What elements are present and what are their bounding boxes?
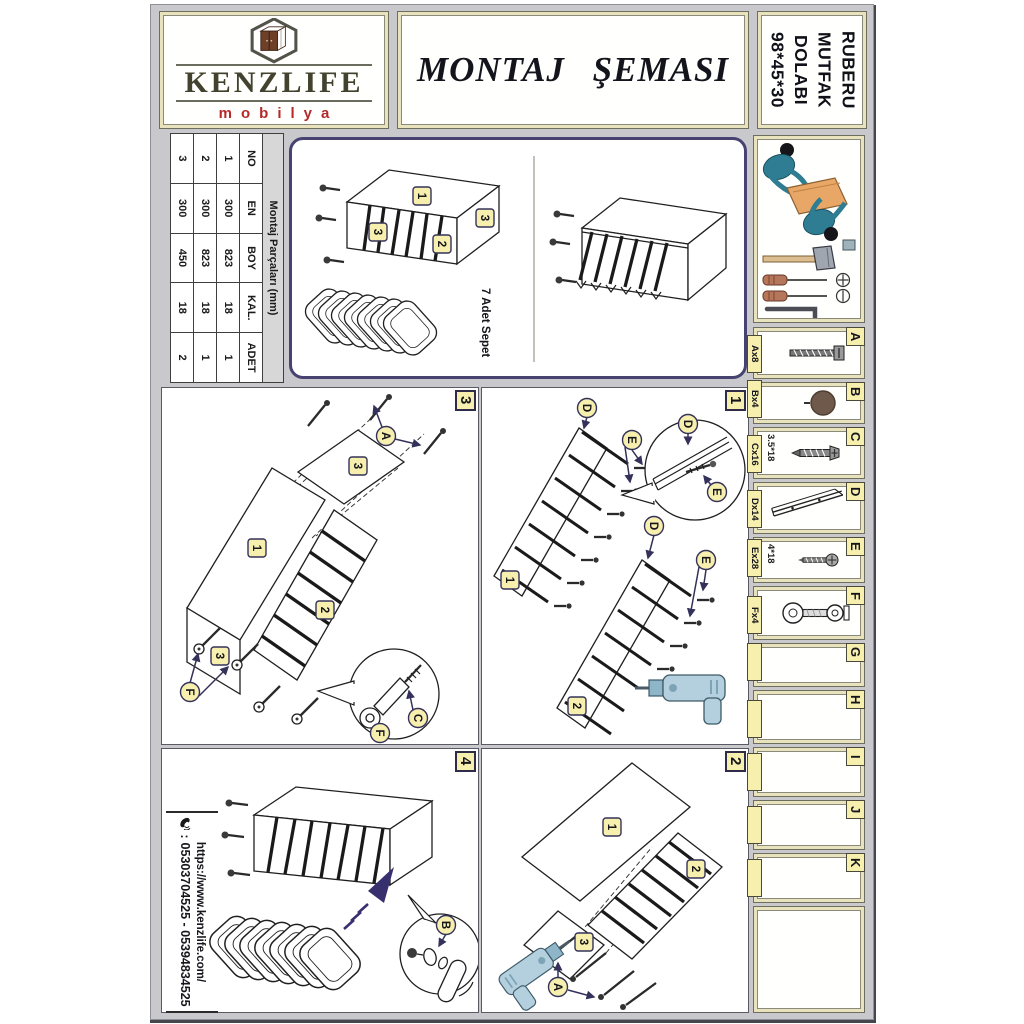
- label-1: 1: [501, 571, 519, 589]
- svg-text:3: 3: [478, 215, 490, 221]
- step-2-panel: 2 1 2 3 A: [481, 748, 749, 1013]
- hardware-box-h: H: [753, 690, 865, 744]
- adjustable-foot-icon: [778, 596, 856, 630]
- label-3-side: 3: [211, 647, 229, 665]
- overview-panel: 1 3 2 3 7 Adet Sepet: [289, 137, 747, 379]
- flat-screwdriver-icon: [763, 290, 850, 303]
- hardware-qty-f: Fx4: [747, 596, 762, 634]
- phillips-icon: [837, 274, 850, 287]
- callout-d2: D: [645, 517, 664, 536]
- hardware-letter-b: B: [846, 382, 865, 401]
- hardware-box-e: E Ex28 4*18: [753, 537, 865, 583]
- svg-text:B: B: [439, 921, 451, 929]
- phone-icon: [179, 817, 192, 830]
- hardware-qty-h: [747, 700, 762, 738]
- hardware-letter-d: D: [846, 482, 865, 501]
- hardware-qty-g: [747, 643, 762, 681]
- svg-text:3: 3: [371, 229, 383, 235]
- table-row: 2300823181: [194, 134, 217, 383]
- svg-text:2: 2: [318, 607, 330, 613]
- svg-text:D: D: [681, 420, 693, 428]
- phone-numbers[interactable]: 05303704525 - 05394834525: [178, 843, 192, 1007]
- callout-e2: E: [697, 551, 716, 570]
- hardware-qty-k: [747, 859, 762, 897]
- brand-name: KENZLIFE: [176, 64, 371, 103]
- product-box: RUBERU MUTFAK DOLABI 98*45*30: [757, 11, 867, 129]
- svg-text:F: F: [373, 729, 385, 736]
- label-1: 1: [603, 818, 621, 836]
- basket-note: 7 Adet Sepet: [479, 288, 491, 357]
- page-title: MONTAJ ŞEMASI: [417, 50, 729, 90]
- brand-subtitle: mobilya: [210, 105, 339, 122]
- step-1-number: 1: [725, 390, 746, 411]
- overview-label-1: 1: [413, 187, 431, 205]
- label-1: 1: [248, 539, 266, 557]
- step-3-number: 3: [455, 390, 476, 411]
- svg-text:A: A: [379, 432, 391, 440]
- brand-logo: KENZLIFE mobilya: [166, 18, 382, 122]
- parts-table-title: Montaj Parçaları (mm): [263, 134, 284, 383]
- hardware-box-b: B Bx4: [753, 382, 865, 424]
- svg-text:3: 3: [577, 939, 589, 945]
- hardware-box-a: A Ax8: [753, 327, 865, 379]
- hardware-box-c: C Cx16 3.5*18: [753, 427, 865, 479]
- cabinet: [222, 787, 433, 885]
- hardware-letter-c: C: [846, 427, 865, 446]
- label-3: 3: [575, 933, 593, 951]
- phillips-screwdriver-icon: [763, 274, 850, 287]
- hardware-box-k: K: [753, 853, 865, 903]
- hardware-letter-e: E: [846, 537, 865, 556]
- basket-stack: [205, 911, 365, 994]
- brand-box: KENZLIFE mobilya: [159, 11, 389, 129]
- overview-label-2: 2: [433, 235, 451, 253]
- label-2: 2: [568, 697, 586, 715]
- callout-c: C: [409, 709, 428, 728]
- svg-text:C: C: [411, 714, 423, 722]
- svg-text:1: 1: [415, 193, 427, 200]
- website-link[interactable]: https://www.kenzlife.com/: [194, 813, 206, 1011]
- svg-text:E: E: [699, 556, 711, 564]
- svg-text:E: E: [625, 436, 637, 444]
- step-2-diagram: 1 2 3 A: [482, 749, 747, 1012]
- step-1-diagram: D E 1 D E 2 D E: [482, 388, 747, 744]
- allen-key-icon: [767, 309, 815, 317]
- hardware-spec-c: 3.5*18: [765, 434, 776, 461]
- svg-text:3: 3: [351, 463, 363, 469]
- svg-text:1: 1: [250, 545, 262, 552]
- table-row: 1300823181: [217, 134, 240, 383]
- svg-text:2: 2: [689, 866, 701, 872]
- callout-e-detail: E: [708, 483, 727, 502]
- svg-text:D: D: [647, 522, 659, 530]
- callout-a: A: [377, 427, 396, 446]
- callout-b: B: [437, 916, 456, 935]
- hardware-box-d: D Dx14: [753, 482, 865, 534]
- hardware-letter-f: F: [846, 586, 865, 605]
- hardware-spec-e: 4*18: [765, 544, 776, 564]
- assembly-sheet: KENZLIFE mobilya MONTAJ ŞEMASI RUBERU MU…: [0, 0, 1024, 1024]
- label-2: 2: [687, 860, 705, 878]
- hardware-qty-a: Ax8: [747, 335, 762, 373]
- callout-e1: E: [623, 431, 642, 450]
- callout-d1: D: [578, 399, 597, 418]
- step-4-panel: 4 https://www.kenzlife.com/ : 0530370452…: [161, 748, 479, 1013]
- overview-label-3l: 3: [369, 223, 387, 241]
- step-2-number: 2: [725, 751, 746, 772]
- svg-text:3: 3: [213, 653, 225, 659]
- hardware-letter-g: G: [846, 643, 865, 662]
- overview-diagram: 1 3 2 3 7 Adet Sepet: [292, 140, 744, 376]
- step-3-panel: 3: [161, 387, 479, 745]
- svg-text:A: A: [551, 983, 563, 991]
- workers-icon: [760, 143, 855, 250]
- hardware-qty-e: Ex28: [747, 539, 762, 577]
- phone-line: : 05303704525 - 05394834525: [178, 813, 192, 1011]
- title-box: MONTAJ ŞEMASI: [397, 11, 749, 129]
- parts-table-wrap: Montaj Parçaları (mm) NO EN BOY KAL. ADE…: [176, 133, 284, 383]
- svg-text:1: 1: [605, 824, 617, 831]
- overview-basket-stack: [301, 285, 441, 360]
- detail-tail: [622, 483, 654, 504]
- hardware-qty-d: Dx14: [747, 490, 762, 528]
- callout-d-detail: D: [679, 415, 698, 434]
- svg-text:2: 2: [570, 703, 582, 709]
- overview-cabinet: 1 3 2 3: [316, 170, 500, 264]
- product-name: RUBERU MUTFAK DOLABI 98*45*30: [765, 31, 860, 109]
- overview-cabinet-loaded: [550, 198, 727, 300]
- hardware-box-i: I: [753, 747, 865, 797]
- overview-label-3r: 3: [476, 209, 494, 227]
- hardware-letter-a: A: [846, 327, 865, 346]
- parts-table: Montaj Parçaları (mm) NO EN BOY KAL. ADE…: [170, 133, 284, 383]
- hardware-letter-k: K: [846, 853, 865, 872]
- drill-icon: [635, 675, 725, 724]
- callout-f-detail: F: [371, 724, 390, 743]
- assembly-help-box: [753, 135, 865, 323]
- svg-text:D: D: [580, 404, 592, 412]
- svg-text:E: E: [710, 488, 722, 496]
- document-page: KENZLIFE mobilya MONTAJ ŞEMASI RUBERU MU…: [150, 4, 874, 1020]
- step-4-number: 4: [455, 751, 476, 772]
- hardware-box-f: F Fx4: [753, 586, 865, 640]
- hardware-qty-j: [747, 806, 762, 844]
- hardware-qty-i: [747, 753, 762, 791]
- hardware-letter-i: I: [846, 747, 865, 766]
- svg-text:2: 2: [435, 241, 447, 247]
- table-row: 3300450182: [171, 134, 194, 383]
- svg-text:1: 1: [503, 577, 515, 584]
- hardware-box-g: G: [753, 643, 865, 687]
- callout-a: A: [549, 978, 568, 997]
- slot-icon: [837, 290, 850, 303]
- hardware-qty-b: Bx4: [747, 380, 762, 418]
- hardware-box-empty: [753, 906, 865, 1013]
- contact-info: https://www.kenzlife.com/ : 05303704525 …: [166, 811, 218, 1013]
- workers-and-tools-illustration: [757, 140, 859, 318]
- hardware-letter-h: H: [846, 690, 865, 709]
- hardware-letter-j: J: [846, 800, 865, 819]
- step-1-panel: 1: [481, 387, 749, 745]
- label-2: 2: [316, 601, 334, 619]
- rail-icon: [766, 488, 856, 528]
- svg-text:F: F: [183, 688, 195, 695]
- step-3-diagram: A 3 1 2 3 F C F: [162, 388, 478, 744]
- hardware-box-j: J: [753, 800, 865, 850]
- callout-f: F: [181, 683, 200, 702]
- hardware-qty-c: Cx16: [747, 435, 762, 473]
- detail-tail: [318, 681, 354, 705]
- label-3-top: 3: [349, 457, 367, 475]
- hammer-icon: [763, 246, 835, 270]
- hexagon-cabinet-icon: [245, 18, 303, 64]
